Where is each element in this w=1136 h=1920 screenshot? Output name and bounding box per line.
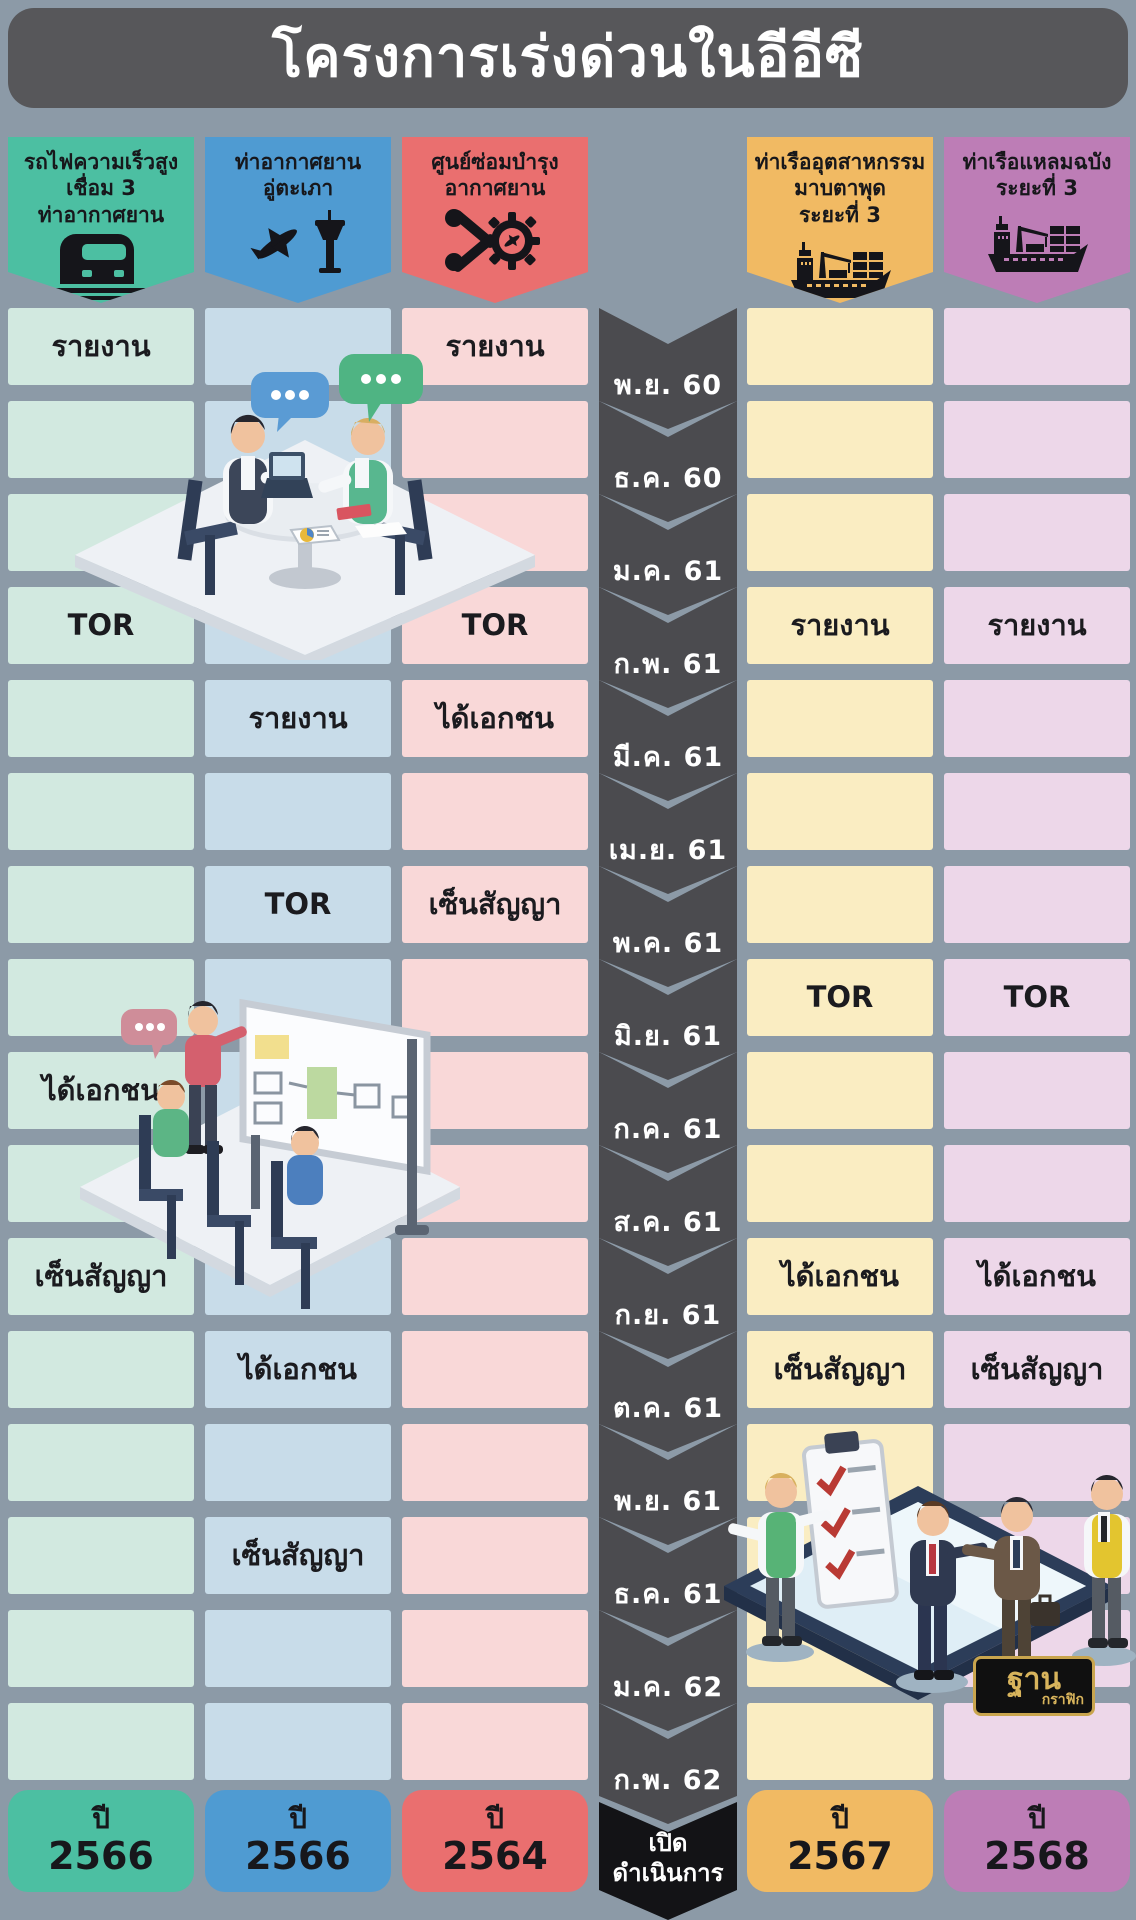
month-label: ก.ค. 61 (614, 1116, 723, 1143)
project-header: ท่าอากาศยาน อู่ตะเภา (205, 137, 391, 303)
eec-infographic: โครงการเร่งด่วนในอีอีซี รถไฟความเร็วสูง … (0, 0, 1136, 1920)
airplane-tower-icon (243, 204, 353, 278)
speech-bubble-green (339, 354, 423, 422)
timeline-cell: เซ็นสัญญา (402, 866, 588, 943)
timeline-cell (8, 1331, 194, 1408)
timeline-cell: รายงาน (205, 680, 391, 757)
presentation-illustration (55, 975, 485, 1320)
timeline-cell (944, 680, 1130, 757)
timeline-cell (747, 680, 933, 757)
timeline-cell (747, 401, 933, 478)
person-yellow-vest (1084, 1475, 1130, 1648)
month-label: พ.ค. 61 (613, 930, 723, 957)
operation-start-label: เปิด ดำเนินการ (613, 1828, 724, 1888)
milestone-label: เซ็นสัญญา (429, 890, 562, 919)
operation-year-badge: ปี2568 (944, 1790, 1130, 1892)
timeline-cell (402, 1331, 588, 1408)
milestone-label: รายงาน (987, 611, 1086, 640)
timeline-cell: ได้เอกชน (944, 1238, 1130, 1315)
timeline-cell (8, 680, 194, 757)
timeline-cell (944, 308, 1130, 385)
milestone-label: TOR (1004, 983, 1071, 1012)
year-value: 2566 (48, 1835, 154, 1879)
timeline-cell (402, 773, 588, 850)
project-title: ท่าเรืออุตสาหกรรม มาบตาพุด ระยะที่ 3 (755, 149, 926, 228)
timeline-cell (944, 494, 1130, 571)
project-header: ศูนย์ซ่อมบำรุง อากาศยาน (402, 137, 588, 303)
milestone-label: รายงาน (790, 611, 889, 640)
year-value: 2566 (245, 1835, 351, 1879)
timeline-cell (205, 1610, 391, 1687)
milestone-label: TOR (807, 983, 874, 1012)
year-prefix: ปี (486, 1804, 504, 1835)
logo-text-sub: กราฟิก (1042, 1693, 1084, 1707)
timeline-cell (944, 773, 1130, 850)
timeline-cell (8, 773, 194, 850)
month-label: พ.ย. 60 (614, 372, 722, 399)
maintenance-icon (440, 204, 550, 278)
year-prefix: ปี (1028, 1804, 1046, 1835)
timeline-cell (8, 866, 194, 943)
timeline-cell (944, 1052, 1130, 1129)
timeline-cell (747, 308, 933, 385)
speech-bubble-blue (251, 372, 329, 432)
timeline-cell: รายงาน (944, 587, 1130, 664)
timeline-cell (8, 1517, 194, 1594)
month-label: ต.ค. 61 (613, 1395, 723, 1422)
timeline-cell: TOR (944, 959, 1130, 1036)
milestone-label: TOR (265, 890, 332, 919)
year-prefix: ปี (831, 1804, 849, 1835)
operation-year-badge: ปี2567 (747, 1790, 933, 1892)
project-title: ท่าอากาศยาน อู่ตะเภา (235, 149, 361, 202)
month-label: ก.พ. 62 (614, 1767, 723, 1794)
timeline-cell: ได้เอกชน (205, 1331, 391, 1408)
milestone-label: ได้เอกชน (239, 1355, 357, 1384)
timeline-cell (747, 1052, 933, 1129)
month-label: มี.ค. 61 (613, 744, 723, 771)
timeline-cell: เซ็นสัญญา (944, 1331, 1130, 1408)
milestone-label: รายงาน (248, 704, 347, 733)
month-label: ธ.ค. 60 (613, 465, 722, 492)
year-prefix: ปี (289, 1804, 307, 1835)
timeline-cell: ได้เอกชน (747, 1238, 933, 1315)
milestone-label: เซ็นสัญญา (774, 1355, 907, 1384)
timeline-cell (944, 1145, 1130, 1222)
milestone-label: เซ็นสัญญา (232, 1541, 365, 1570)
publisher-logo: ฐาน กราฟิก (973, 1656, 1095, 1716)
year-value: 2567 (787, 1835, 893, 1879)
milestone-label: ได้เอกชน (978, 1262, 1096, 1291)
timeline-cell: รายงาน (747, 587, 933, 664)
timeline-cell: TOR (205, 866, 391, 943)
meeting-illustration (55, 330, 555, 660)
month-label: ม.ค. 61 (613, 558, 723, 585)
train-icon (46, 230, 156, 304)
timeline-cell (8, 1610, 194, 1687)
operation-year-badge: ปี2566 (8, 1790, 194, 1892)
timeline-cell: TOR (747, 959, 933, 1036)
timeline-cell (205, 773, 391, 850)
timeline-cell (205, 1703, 391, 1780)
cargo-ship-icon (785, 230, 895, 304)
cargo-ship-icon (982, 204, 1092, 278)
briefcase-icon (1030, 1602, 1060, 1626)
timeline-cell (944, 401, 1130, 478)
speech-bubble-pink (121, 1009, 177, 1059)
timeline-cell: เซ็นสัญญา (747, 1331, 933, 1408)
timeline-cell (402, 1703, 588, 1780)
project-header: ท่าเรืออุตสาหกรรม มาบตาพุด ระยะที่ 3 (747, 137, 933, 303)
project-title: ท่าเรือแหลมฉบัง ระยะที่ 3 (963, 149, 1112, 202)
month-label: ส.ค. 61 (613, 1209, 722, 1236)
timeline-cell (402, 1424, 588, 1501)
milestone-label: เซ็นสัญญา (971, 1355, 1104, 1384)
project-title: ศูนย์ซ่อมบำรุง อากาศยาน (431, 149, 558, 202)
timeline-cell (205, 1424, 391, 1501)
month-label: ก.พ. 61 (614, 651, 723, 678)
timeline-cell: เซ็นสัญญา (205, 1517, 391, 1594)
year-value: 2564 (442, 1835, 548, 1879)
month-label: เม.ย. 61 (609, 837, 727, 864)
timeline-cell (944, 866, 1130, 943)
timeline-cell (747, 494, 933, 571)
timeline-cell (8, 1703, 194, 1780)
timeline-cell (8, 1424, 194, 1501)
project-title: รถไฟความเร็วสูง เชื่อม 3 ท่าอากาศยาน (24, 149, 178, 228)
timeline-cell (402, 1517, 588, 1594)
page-title: โครงการเร่งด่วนในอีอีซี (272, 30, 864, 86)
milestone-label: ได้เอกชน (436, 704, 554, 733)
timeline-cell (402, 1610, 588, 1687)
timeline-cell (747, 1145, 933, 1222)
month-label: ก.ย. 61 (615, 1302, 722, 1329)
title-bar: โครงการเร่งด่วนในอีอีซี (8, 8, 1128, 108)
year-prefix: ปี (92, 1804, 110, 1835)
month-chevron: พ.ย. 60 (599, 308, 737, 429)
operation-year-badge: ปี2564 (402, 1790, 588, 1892)
year-value: 2568 (984, 1835, 1090, 1879)
timeline-cell (747, 866, 933, 943)
logo-text-main: ฐาน (1007, 1666, 1061, 1693)
project-header: ท่าเรือแหลมฉบัง ระยะที่ 3 (944, 137, 1130, 303)
chart-tablet-icon (291, 526, 339, 544)
month-label: มิ.ย. 61 (614, 1023, 722, 1050)
timeline-cell (747, 773, 933, 850)
timeline-cell: ได้เอกชน (402, 680, 588, 757)
project-header: รถไฟความเร็วสูง เชื่อม 3 ท่าอากาศยาน (8, 137, 194, 303)
milestone-label: ได้เอกชน (781, 1262, 899, 1291)
operation-year-badge: ปี2566 (205, 1790, 391, 1892)
